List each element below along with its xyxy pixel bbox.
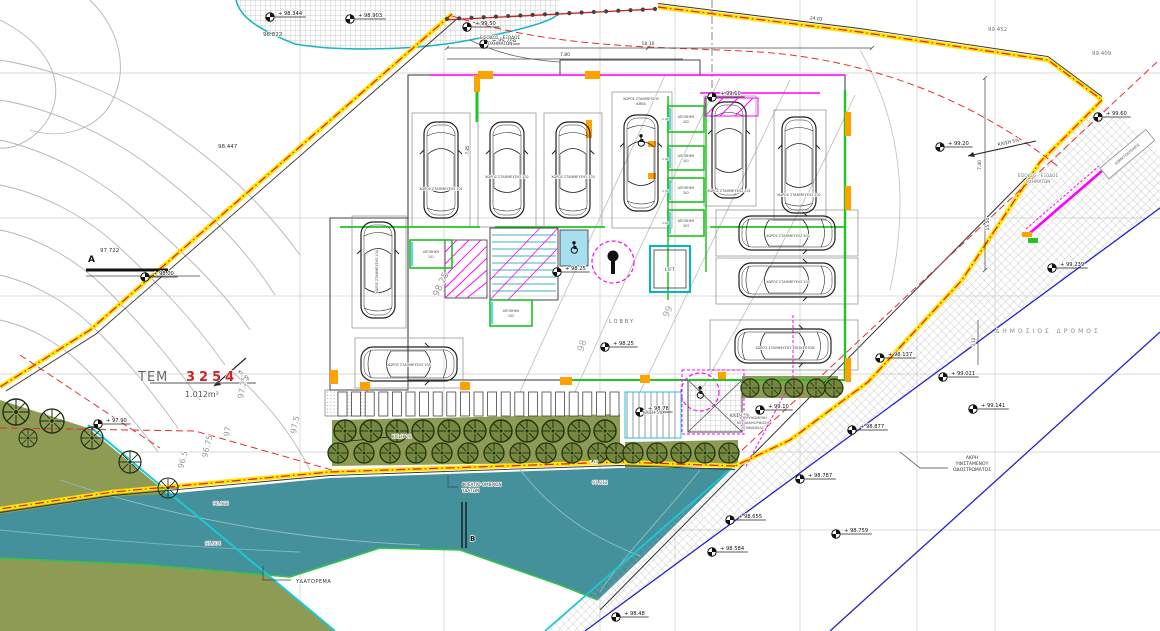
tree-icon [19,429,37,447]
bush-icon [490,420,512,442]
benchmark-value: + 99.10 [720,91,741,97]
boundary-dot [579,10,583,14]
tree-icon [119,451,141,473]
pergola-post [433,392,442,416]
pergola-post [501,392,510,416]
plan-label: ΧΩΡΟΣ ΣΤΑΘΜΕΥΣΗΣ ΕΠΙΣΚΕΠΤΩΝ [755,346,815,350]
boundary-dot [641,7,645,11]
boundary-dot [616,9,620,13]
plan-label: ΧΩΡΟΣ ΣΤΑΘΜΕΥΣΗΣ 201 [707,189,751,193]
benchmark-value: + 98.759 [844,528,868,534]
plan-label: LOBBY [609,319,635,325]
bush-icon [763,379,781,397]
plan-label: LIFT [665,267,675,272]
bush-icon [785,379,803,397]
storage-number: 301 [683,159,689,163]
plan-label: 1.40 [662,157,669,161]
plan-label: ΕΙΣΟΔΟΣ - ΕΞΟΔΟΣ [1018,173,1059,178]
storage-label: ΑΠΟΘΗΚΗ [423,250,440,254]
benchmark-value: + 99.60 [1106,111,1127,117]
bush-icon [328,443,348,463]
benchmark-value: + 99.021 [951,371,975,377]
plan-label: ΧΩΡΟΣ ΣΤΑΘΜΕΥΣΗΣ 103 [551,175,595,179]
bush-icon [438,420,460,442]
bush-icon [695,443,715,463]
pergola-post [528,392,537,416]
plan-label: B [470,535,475,543]
plan-label: ΥΔΑΤΩΝ [461,488,479,493]
plan-label: ΔΗΜΟΣΙΟΣ ΔΡΟΜΟΣ [995,328,1101,335]
bush-icon [432,443,452,463]
bush-icon [380,443,400,463]
pergola-post [460,392,469,416]
benchmark-value: + 98.25 [565,266,586,272]
benchmark-value: + 98.137 [888,352,912,358]
storage-number: 303 [683,224,689,228]
pergola-post [447,392,456,416]
plan-label: ΦΡΕΑΤΙΟ ΟΜΒΡΙΩΝ [462,482,502,487]
bush-icon [542,420,564,442]
benchmark-value: + 99.239 [1060,262,1084,268]
plan-label: A [88,255,95,265]
benchmark-value: + 98.25 [613,341,634,347]
plan-label: ΤΕΜ [137,370,168,385]
plan-label: ΧΩΡΟΣ ΣΤΑΘΜΕΥΣΗΣ [623,97,659,101]
pergola-post [406,392,415,416]
bush-icon [719,443,739,463]
storage-label: ΑΠΟΘΗΚΗ [503,309,520,313]
pergola-post [474,392,483,416]
benchmark-value: + 98.787 [808,473,832,479]
plan-label: 96.988 [213,501,229,507]
plan-label: 97 [222,426,233,438]
plan-label: 1.20 [662,221,669,225]
pergola-post [515,392,524,416]
plan-label: ΥΠΕΡΥΨΩΜΕΝΗ [739,416,767,420]
plan-label: ΟΧΗΜΑΤΩΝ [1026,179,1051,184]
bush-icon [458,443,478,463]
benchmark-value: + 98.655 [738,514,762,520]
plan-label: 97.722 [100,248,119,254]
pergola-post [583,392,592,416]
bush-icon [647,443,667,463]
benchmark-value: + 99.20 [948,141,969,147]
plan-label: ΑΚΡΗ [966,455,978,461]
bush-icon [671,443,691,463]
boundary-dot [567,11,571,15]
tree-icon [3,399,29,425]
plan-label: ΧΩΡΟΣ ΣΤΑΘΜΕΥΣΗΣ 202 [777,193,821,197]
bush-icon [562,443,582,463]
bush-icon [510,443,530,463]
boundary-dot [469,16,473,20]
pergola-post [569,392,578,416]
bush-icon [334,420,356,442]
pergola-post [365,392,374,416]
bush-icon [484,443,504,463]
storage-label: ΑΠΟΘΗΚΗ [678,154,695,158]
plan-label: 7.85 [465,145,470,154]
benchmark-value: + 99.50 [475,21,496,27]
boundary-dot [518,13,522,17]
site-plan-canvas: ΑΠΟΘΗΚΗ202ΑΠΟΘΗΚΗ301ΑΠΟΘΗΚΗ302ΑΠΟΘΗΚΗ303… [0,0,1160,631]
boundary-dot [494,15,498,19]
bush-icon [623,443,643,463]
storage-label: ΑΠΟΘΗΚΗ [678,186,695,190]
pergola-post [596,392,605,416]
plan-label: ΧΩΡΟΣ ΣΤΑΘΜΕΥΣΗΣ 105 [387,363,431,367]
bush-icon [464,420,486,442]
pergola-post [420,392,429,416]
tree-icon [81,427,103,449]
boundary-dot [543,12,547,16]
pergola-post [338,392,347,416]
plan-label: 97.004 [205,541,221,547]
boundary-dot [531,13,535,17]
plan-label: ΧΩΡΟΣ ΣΤΑΘΜΕΥΣΗΣ 104 [375,250,379,294]
benchmark-value: + 99.141 [981,403,1005,409]
plan-label: 3254 [186,370,238,385]
benchmark-value: + 98.903 [358,13,382,19]
boundary-dot [445,17,449,21]
storage-number: 202 [683,120,689,124]
bush-icon [412,420,434,442]
plan-label: 97.812 [592,480,608,486]
storage-number: 102 [508,314,514,318]
plan-label: 7.80 [560,52,570,58]
pergola-post [379,392,388,416]
plan-label: 15.50 [985,217,991,230]
plan-label: ΚΛΙΣΗ 5% [643,410,663,415]
bush-icon [406,443,426,463]
bush-icon [807,379,825,397]
storage-number: 101 [428,255,434,259]
boundary-dot [604,9,608,13]
plan-label: 1.45 [662,117,669,121]
pergola-post [556,392,565,416]
boundary-dot [555,12,559,16]
pergola-post [392,392,401,416]
plan-label: 1.012m² [185,390,219,399]
boundary-dot [653,7,657,11]
boundary-dot [506,14,510,18]
plan-label: 1.40 [590,460,598,464]
benchmark-value: + 97.90 [106,418,127,424]
storage-label: ΑΠΟΘΗΚΗ [678,115,695,119]
plan-label: 1.30 [662,189,669,193]
plan-label: ΧΩΡΟΣ ΣΤΑΘΜΕΥΣΗΣ 302 [766,234,810,238]
plan-label: 98.822 [263,32,282,38]
plan-label: ΧΩΡΟΣ ΣΤΑΘΜΕΥΣΗΣ 203 [766,280,810,284]
storage-label: ΑΠΟΘΗΚΗ [678,219,695,223]
benchmark-value: + 98.344 [278,11,303,17]
plan-label: ΧΩΡΟΣ ΣΤΑΘΜΕΥΣΗΣ 102 [485,175,529,179]
pergola-deck [338,392,619,416]
plan-label: 99.452 [988,27,1007,33]
benchmark-value: + 99.10 [768,404,789,410]
bush-icon [536,443,556,463]
benchmark-value: + 98.00 [153,271,174,277]
boundary-dot [592,10,596,14]
bush-icon [741,379,759,397]
plan-label: 99.409 [1092,51,1112,57]
plan-label: ΑΜΕΑ [636,102,646,106]
bush-icon [568,420,590,442]
boundary-dot [457,16,461,20]
plan-label: ΚΛΙΣΗ 7% [392,434,412,439]
plan-label: 3.10 [971,337,976,346]
plan-label: ΟΧΗΜΑΤΩΝ [488,41,513,46]
benchmark-value: + 98.877 [860,424,884,430]
bush-icon [360,420,382,442]
plan-label: ΕΠΙΦΑΝΕΙΑΣ [742,426,765,430]
plan-label: ΥΔΑΤΟΡΕΜΑ [295,579,331,585]
plan-label: ΝΕΟΔΙΑΜΟΡΦΩΣΗ [737,421,770,425]
storage-number: 302 [683,191,689,195]
boundary-dot [482,15,486,19]
pergola-post [610,392,619,416]
boundary-dot [628,8,632,12]
benchmark-value: + 98.584 [720,546,745,552]
plan-label: 18.10 [642,41,655,47]
tree-icon [158,478,178,498]
tree-icon [40,409,64,433]
plan-label: ΟΔΟΣΤΡΩΜΑΤΟΣ [953,467,991,473]
bush-icon [354,443,374,463]
site-plan-sheet: ΑΠΟΘΗΚΗ202ΑΠΟΘΗΚΗ301ΑΠΟΘΗΚΗ302ΑΠΟΘΗΚΗ303… [0,0,1160,631]
plan-label: ΧΩΡΟΣ ΣΤΑΘΜΕΥΣΗΣ 101 [419,187,463,191]
plan-label: 98.447 [218,144,238,150]
pergola-post [352,392,361,416]
pergola-post [488,392,497,416]
pergola-post [542,392,551,416]
bush-icon [825,379,843,397]
bush-icon [594,420,616,442]
plan-label: 7.40 [977,160,983,170]
bush-icon [516,420,538,442]
plan-label: ΥΦΙΣΤΑΜΕΝΟΥ [955,461,989,467]
benchmark-value: + 98.48 [624,611,645,617]
plan-label: ΕΙΣΟΔΟΣ - ΕΞΟΔΟΣ [480,35,521,40]
